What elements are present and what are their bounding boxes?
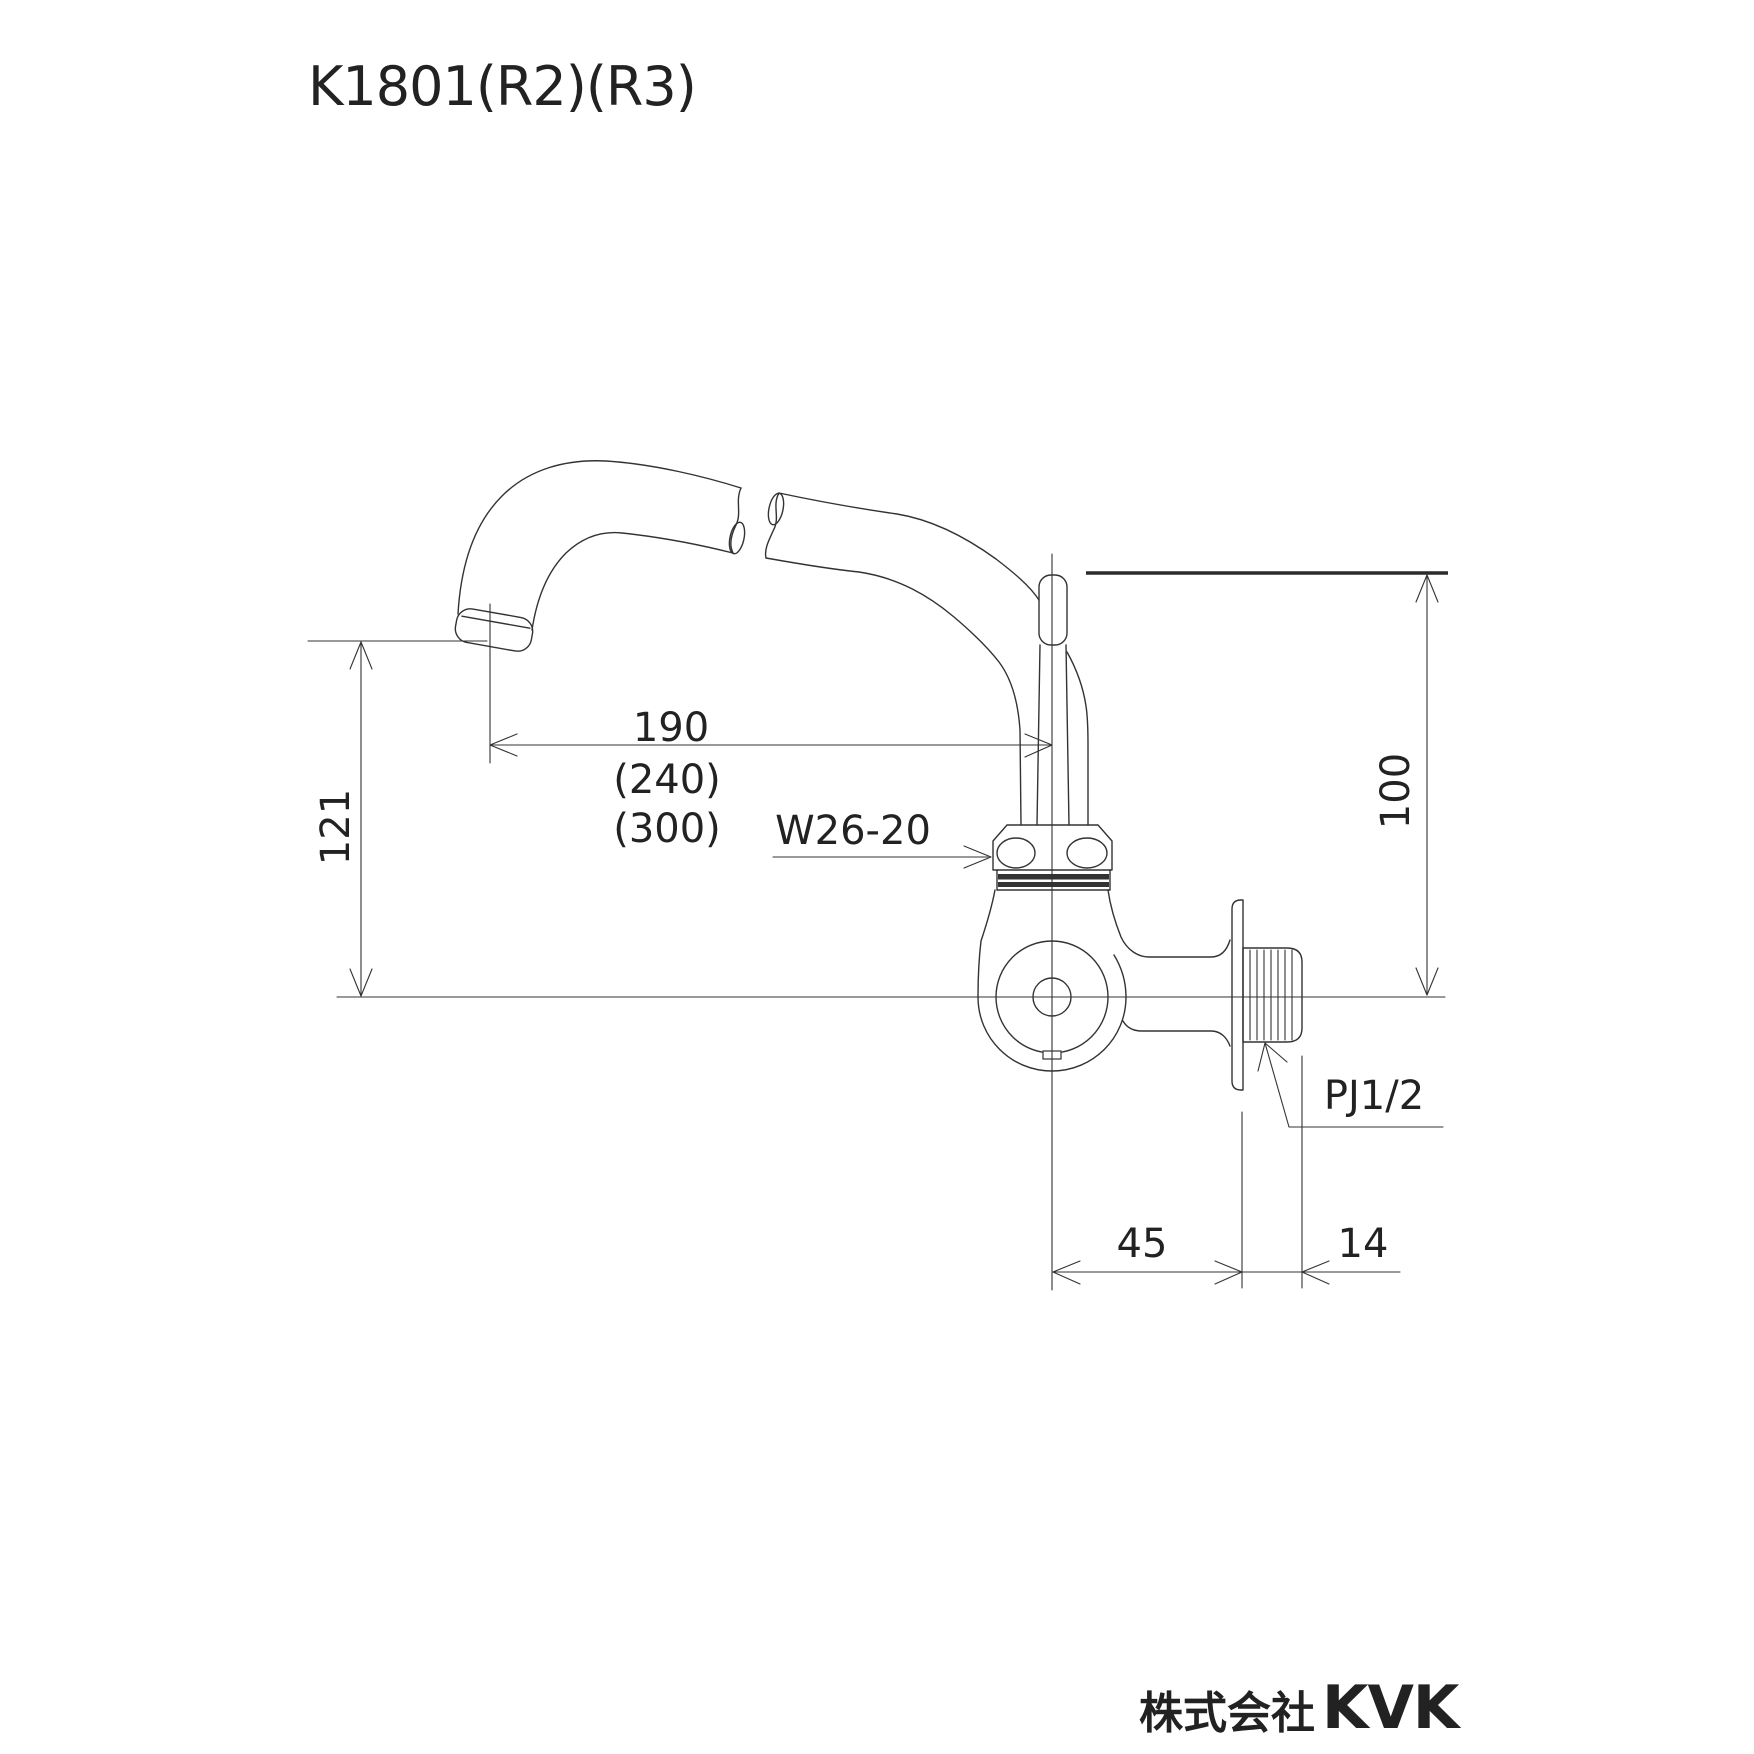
dim-value-center-to-wall: 45 bbox=[1117, 1221, 1168, 1267]
bonnet-left-profile bbox=[978, 890, 995, 997]
spout-inner-edge bbox=[532, 533, 733, 630]
spout-bottom-edge bbox=[766, 558, 1021, 825]
spout-right-segment bbox=[766, 492, 1088, 825]
company-logo: 株式会社 KVK bbox=[1139, 1673, 1462, 1743]
trim-ring-band-2 bbox=[998, 882, 1109, 887]
pipe-break-left-lens bbox=[727, 521, 747, 555]
spout-left-segment bbox=[453, 461, 747, 654]
dimension-top-to-center: 100 bbox=[1373, 575, 1438, 995]
nut-face-left bbox=[997, 838, 1035, 868]
leader-arrow-pj bbox=[1258, 1043, 1287, 1071]
trim-ring-band-1 bbox=[998, 874, 1109, 880]
swivel-cap bbox=[1039, 575, 1067, 645]
label-nut-thread: W26-20 bbox=[775, 808, 931, 854]
technical-drawing-page: K1801(R2)(R3) bbox=[0, 0, 1754, 1754]
stem-inner-left-line bbox=[1037, 645, 1040, 825]
spout-right-edge bbox=[1067, 652, 1088, 825]
dimension-spout-height: 121 bbox=[308, 641, 487, 996]
logo-company-text: 株式会社 bbox=[1139, 1688, 1315, 1739]
dim-value-spout-reach-r3: (300) bbox=[613, 806, 721, 852]
thread-hatch-lines bbox=[1250, 950, 1292, 1040]
callout-nut-thread: W26-20 bbox=[773, 808, 991, 868]
pipe-break-left-edge bbox=[731, 488, 741, 553]
outlet-collar-edge-line bbox=[462, 616, 530, 628]
dim-value-thread-length: 14 bbox=[1338, 1221, 1389, 1267]
outlet-collar-body bbox=[453, 607, 535, 654]
neck-top-profile bbox=[1108, 890, 1230, 957]
nut-face-right bbox=[1067, 838, 1107, 868]
wall-flange bbox=[1232, 900, 1243, 1090]
pipe-break-right-edge bbox=[766, 493, 779, 558]
dim-value-spout-height: 121 bbox=[313, 789, 359, 865]
dimension-spout-reach: 190 (240) (300) bbox=[490, 604, 1052, 852]
valve-body bbox=[978, 890, 1230, 1071]
label-inlet-thread: PJ1/2 bbox=[1324, 1073, 1424, 1119]
neck-bottom-profile bbox=[1123, 1021, 1230, 1046]
drawing-title: K1801(R2)(R3) bbox=[308, 55, 696, 118]
faucet-dimension-drawing: K1801(R2)(R3) bbox=[0, 0, 1754, 1754]
spout-outlet-collar bbox=[453, 607, 535, 654]
spout-outer-edge bbox=[458, 461, 741, 614]
dim-value-top-to-center: 100 bbox=[1373, 753, 1419, 829]
stem-inner-right-line bbox=[1066, 645, 1069, 825]
spout-top-edge bbox=[779, 493, 1039, 600]
inlet-thread-body bbox=[1243, 948, 1302, 1042]
dim-value-spout-reach-r2: (240) bbox=[613, 757, 721, 803]
logo-brand-text: KVK bbox=[1322, 1673, 1462, 1743]
wall-connection bbox=[1232, 900, 1302, 1090]
dim-value-spout-reach: 190 bbox=[633, 705, 709, 751]
callout-inlet-thread: PJ1/2 bbox=[1258, 1043, 1443, 1127]
